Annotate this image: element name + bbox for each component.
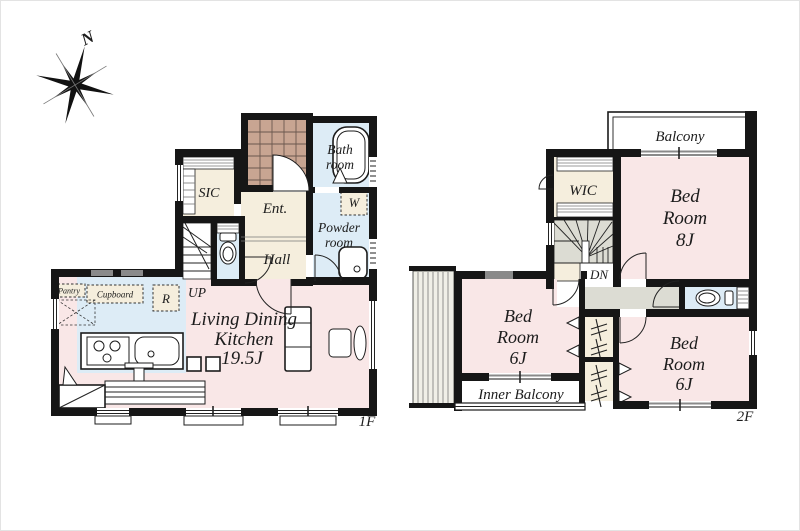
window-bath-right bbox=[369, 157, 377, 187]
label-bath-2: room bbox=[326, 157, 354, 172]
label-pantry: Pantry bbox=[57, 287, 80, 296]
label-bed8-2: Room bbox=[662, 208, 707, 229]
powder-sink-fixture bbox=[339, 247, 367, 279]
floor2-plan: Balcony WIC Bed Room 8J DN Bed Room 6J B… bbox=[409, 111, 757, 425]
label-bed6l-3: 6J bbox=[510, 348, 528, 368]
label-bed6r-1: Bed bbox=[670, 333, 699, 353]
floor-plan-drawing: N bbox=[1, 1, 800, 531]
inner-balcony-rail bbox=[455, 403, 585, 410]
label-floor1: 1F bbox=[359, 414, 377, 430]
label-ldk-2: Kitchen bbox=[213, 329, 273, 350]
compass-north-label: N bbox=[77, 27, 98, 50]
window-ldk-right bbox=[369, 301, 377, 369]
window-sic-left bbox=[175, 165, 183, 201]
label-sic: SIC bbox=[199, 186, 221, 201]
floor1-plan: SIC Ent. Hall Bath room W Powder room UP… bbox=[51, 113, 377, 430]
label-bed8-3: 8J bbox=[676, 230, 696, 251]
toilet2-fixture bbox=[696, 290, 733, 306]
closet-bottom-fill bbox=[585, 362, 613, 401]
label-fridge: R bbox=[161, 291, 170, 306]
label-powder-1: Powder bbox=[317, 220, 361, 235]
label-bed6l-1: Bed bbox=[504, 306, 533, 326]
label-inner-balcony: Inner Balcony bbox=[477, 387, 564, 403]
label-balcony: Balcony bbox=[655, 129, 704, 145]
label-washer: W bbox=[349, 196, 361, 210]
compass: N bbox=[27, 27, 124, 134]
label-ent: Ent. bbox=[262, 201, 288, 217]
tv-icon bbox=[354, 326, 366, 360]
window-bottom-small bbox=[95, 408, 131, 424]
label-bed6l-2: Room bbox=[496, 327, 539, 347]
label-cupboard: Cupboard bbox=[97, 290, 134, 300]
window-bed6r-right bbox=[749, 331, 757, 355]
label-bed6r-2: Room bbox=[662, 354, 705, 374]
hall2-fill bbox=[585, 287, 685, 309]
corner-storage bbox=[59, 385, 105, 408]
label-dn: DN bbox=[589, 267, 609, 282]
window-bed6l-top bbox=[485, 271, 513, 279]
label-bed6r-3: 6J bbox=[676, 374, 694, 394]
toilet1-fixture bbox=[220, 233, 236, 264]
window-ldk-left bbox=[51, 299, 59, 329]
label-floor2: 2F bbox=[737, 409, 755, 425]
landing-shelf bbox=[554, 263, 580, 281]
label-wic: WIC bbox=[569, 183, 597, 199]
label-ldk-3: 19.5J bbox=[221, 348, 264, 369]
window-powder-right bbox=[369, 239, 377, 269]
floor-plan-page: N bbox=[0, 0, 800, 531]
label-up: UP bbox=[188, 285, 206, 300]
label-bed8-1: Bed bbox=[670, 186, 700, 207]
window-bottom-mid bbox=[184, 406, 243, 425]
tv-stand bbox=[329, 326, 366, 360]
kitchen-sink-icon bbox=[135, 337, 179, 365]
label-bath-1: Bath bbox=[327, 142, 353, 157]
window-bottom-large bbox=[278, 406, 338, 425]
toilet1-shelf bbox=[217, 223, 239, 233]
label-powder-2: room bbox=[325, 235, 353, 250]
window-toilet2 bbox=[737, 287, 749, 309]
window-stairwell bbox=[546, 223, 554, 245]
low-cabinet bbox=[105, 381, 205, 404]
label-hall: Hall bbox=[263, 252, 291, 268]
roof-strip bbox=[409, 266, 456, 408]
room-bed6l-fill2 bbox=[557, 307, 579, 373]
label-ldk-1: Living Dining bbox=[190, 309, 297, 330]
